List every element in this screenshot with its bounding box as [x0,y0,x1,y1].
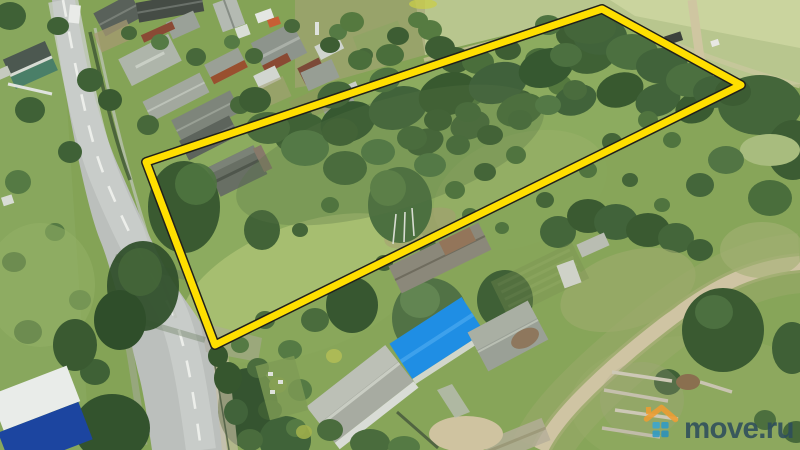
svg-text:move.ru: move.ru [684,412,794,445]
